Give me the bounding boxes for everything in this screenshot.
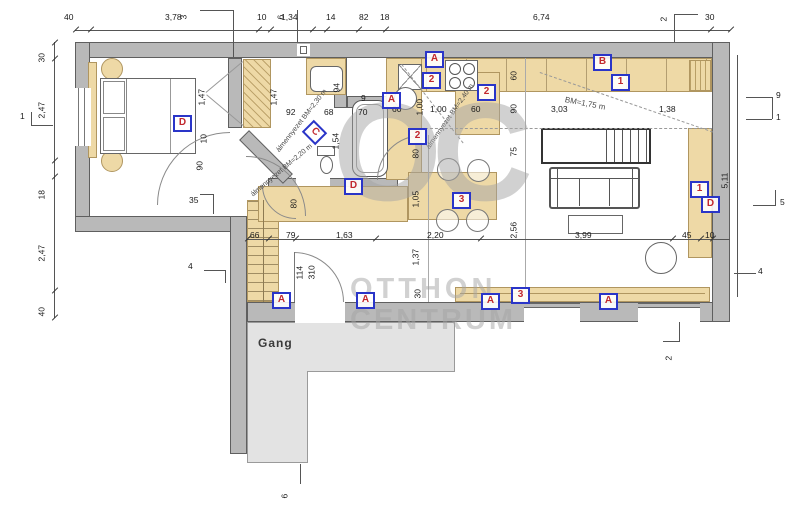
dim-label: 1,05 [412,191,421,208]
dim-label: 5,11 [721,173,730,189]
dim-label: 45 [682,231,691,240]
marker-bottom-A2: A [356,292,375,309]
window-bottom-2-glass-b [638,307,700,308]
wall-gang-left [230,216,247,454]
dim-line-left [54,42,55,318]
dim-callout: 5 [780,198,785,207]
dim-label: 114 [296,266,305,280]
marker-kitchen-A-top: A [425,51,444,68]
tick [52,55,58,61]
window-left-line-1 [78,88,79,146]
dim-label: 10 [257,13,266,22]
dim-label: 1,54 [332,133,341,150]
sofa [549,167,640,209]
dim-callout: 3 [180,15,189,20]
corridor-area-lower [247,371,308,463]
dim-callout: 9 [776,91,781,100]
sofa-armrest-right [632,168,633,207]
construction-line-vertical-1 [525,58,526,302]
sofa-seat-divider-1 [579,178,580,206]
dim-label: 75 [510,147,519,156]
dim-label: 1,00 [416,99,425,116]
callout-line-right-1 [746,119,772,120]
marker-bottom-A4: A [599,293,618,310]
marker-kitchen-A-left: A [382,92,401,109]
tick [52,314,58,320]
marker-bottom-A3: A [481,293,500,310]
marker-bottom-3: 3 [511,287,530,304]
window-bottom-2-glass-a [638,303,700,304]
dim-label: 60 [510,71,519,80]
dim-label: 1,47 [198,89,207,106]
dim-line-right [737,55,738,297]
dim-label: 10 [705,231,714,240]
dim-callout: 1 [776,113,781,122]
bed-pillow-1 [103,81,125,114]
round-chair [645,242,677,274]
dim-label: 2,56 [510,222,519,239]
bed-blanket-line [170,79,171,153]
dim-label: 3,99 [575,231,592,240]
marker-bath-C: C [302,120,327,145]
dim-label: 30 [414,289,423,298]
toilet-bowl [320,156,333,174]
dim-label: 80 [290,199,299,208]
marker-living-1: 1 [611,74,630,91]
window-bottom-1-glass-b [524,307,580,308]
dim-label: 2,20 [427,231,444,240]
dim-callout: 4 [188,262,193,271]
dim-callout: 2 [660,17,669,22]
window-bottom-1-glass-a [524,303,580,304]
dim-label: 30 [38,53,47,62]
tick [52,39,58,45]
dim-label: 1,63 [336,231,353,240]
dim-label: 18 [38,190,47,199]
loft-ladder-half [599,130,649,162]
dim-label: 3,03 [551,105,568,114]
marker-dining-3: 3 [452,192,471,209]
bed-pillow-2 [103,117,125,151]
dim-label: 40 [38,307,47,316]
callout-line-top-2 [674,14,698,42]
callout-line-35 [200,194,214,214]
dim-line-mid [247,239,730,240]
tick [728,26,734,32]
dim-label: 1,47 [270,89,279,106]
watermark-line2: CENTRUM [350,306,516,335]
dim-label: 9 [361,94,366,103]
nightstand-top [101,58,123,80]
bed-headboard-line [126,79,127,153]
dim-label: 2,47 [38,102,47,119]
corridor-label: Gang [258,336,293,350]
corridor-join-patch [248,369,307,374]
dim-label: 1,00 [430,105,447,114]
tick [52,287,58,293]
dim-label: 2,47 [38,245,47,262]
wall-top [75,42,730,58]
marker-bottom-A1: A [272,292,291,309]
dim-label: 92 [286,108,295,117]
ceiling-note-living: BM=1,75 m [564,95,606,112]
sofa-seat-divider-2 [609,178,610,206]
dim-label: 60 [471,105,480,114]
dim-label: 14 [326,13,335,22]
floor-plan-canvas: Gang [0,0,800,506]
window-left-line-2 [84,88,85,146]
dim-label: 70 [358,108,367,117]
callout-line-bottom-6 [300,464,301,484]
marker-kitchen-2c: 2 [408,128,427,145]
marker-bedroom-D: D [173,115,192,132]
dim-callout: 6 [281,494,290,499]
callout-line-bottom-2 [663,322,680,342]
dim-callout: 2 [665,356,674,361]
entry-door-opening [295,301,345,323]
callout-conn-right-9-1 [772,97,773,119]
dim-label: 1,38 [659,105,676,114]
dim-label: 90 [196,161,205,170]
dim-label: 30 [705,13,714,22]
dim-callout: 6 [277,15,286,20]
dim-label: 18 [380,13,389,22]
dim-label: 82 [359,13,368,22]
dim-label: 35 [189,196,198,205]
watermark-logo: OC [333,82,523,222]
window-bottom-2-recess [638,308,700,323]
dim-label: 66 [250,231,259,240]
dim-callout: 1 [20,112,25,121]
sofa-armrest-left [557,168,558,207]
dim-label: 6,74 [533,13,550,22]
dim-label: 10 [200,134,209,143]
window-left-opening [74,88,91,146]
sofa-back-line [551,178,638,179]
ceiling-note-bath: álmennyezet BM=2,30 m [275,88,328,153]
fridge [689,60,711,91]
marker-rightwall-D: D [701,196,720,213]
dim-label: 1,37 [412,249,421,266]
window-bottom-1-recess [524,308,580,323]
tick [52,157,58,163]
marker-living-B: B [593,54,612,71]
dim-label: 68 [324,108,333,117]
wall-bedroom-bottom [75,216,235,232]
tick [52,173,58,179]
dim-label: 90 [510,104,519,113]
dim-callout: 4 [758,267,763,276]
dim-label: 310 [308,265,317,279]
dim-label: 40 [64,13,73,22]
dim-label: 79 [286,231,295,240]
marker-bath-D: D [344,178,363,195]
dim-line-top [75,30,730,31]
wardrobe-hall [243,59,271,128]
marker-kitchen-2b: 2 [477,84,496,101]
callout-line-right-9 [746,97,772,98]
dim-label: 94 [333,83,342,92]
dim-label: 80 [412,149,421,158]
callout-line-top-3 [200,10,234,57]
callout-line-right-5 [753,190,776,206]
chimney-box [300,46,307,54]
callout-line-right-4 [734,273,756,274]
marker-kitchen-2a: 2 [422,72,441,89]
callout-line-left-4 [204,270,226,283]
